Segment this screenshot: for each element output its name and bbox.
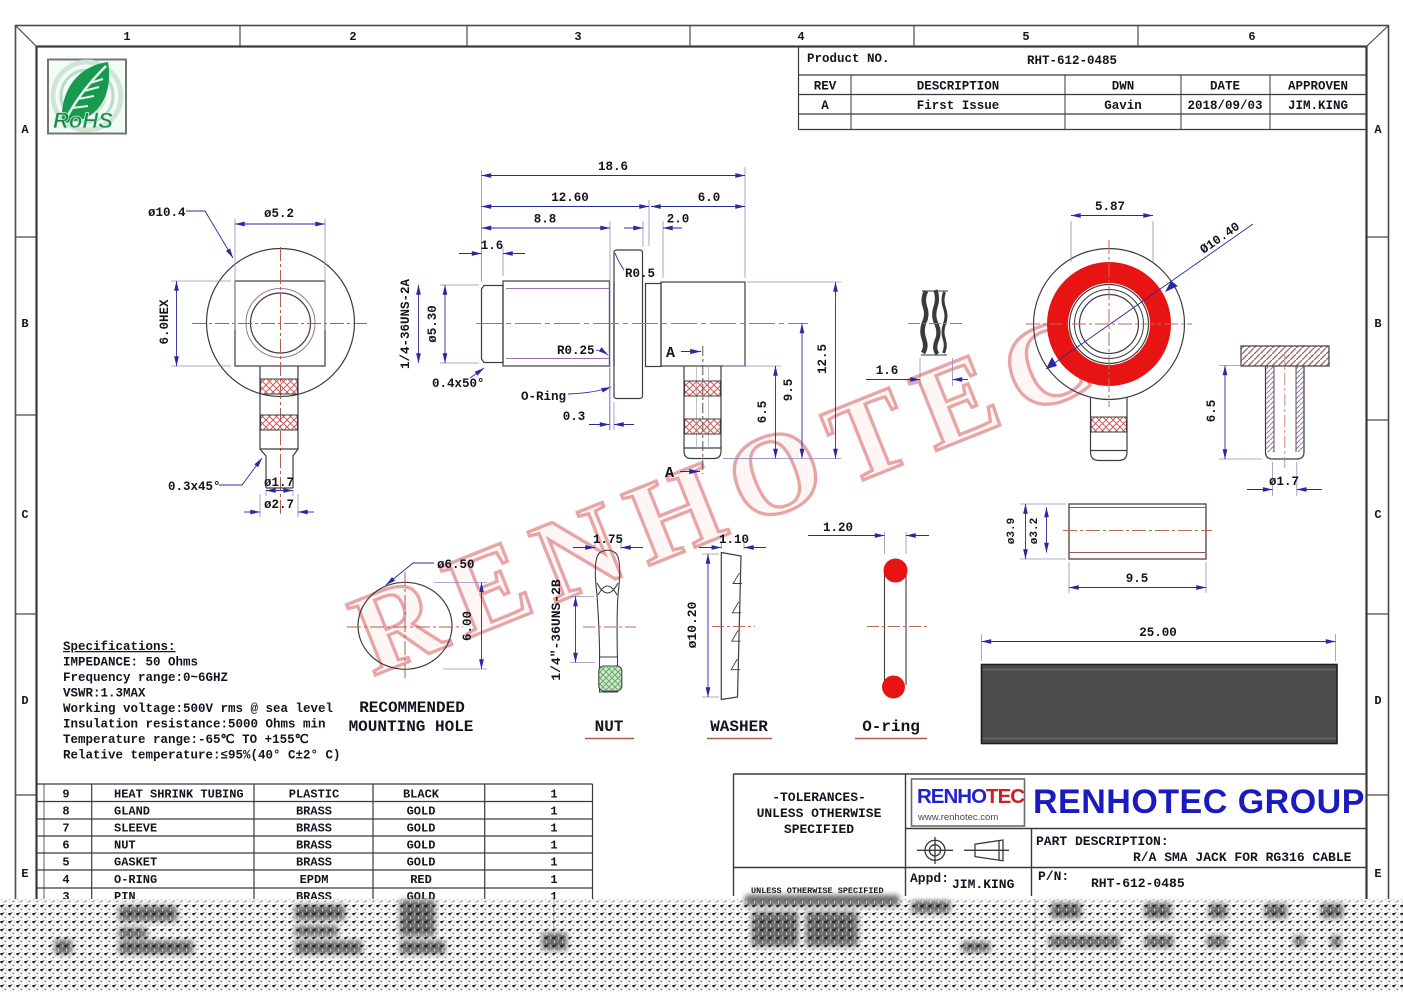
svg-text:WASHER: WASHER <box>710 718 768 736</box>
svg-text:JIM.KING: JIM.KING <box>1288 99 1348 113</box>
svg-text:RECOMMENDED: RECOMMENDED <box>359 699 465 717</box>
svg-text:O-RING: O-RING <box>114 873 157 887</box>
svg-text:Insulation resistance:5000 Ohm: Insulation resistance:5000 Ohms min <box>63 718 326 732</box>
svg-text:ø1.7: ø1.7 <box>264 476 294 490</box>
svg-text:3: 3 <box>574 30 581 44</box>
svg-text:D: D <box>21 694 28 708</box>
svg-text:RENHOTEC GROUP: RENHOTEC GROUP <box>1033 783 1365 821</box>
svg-text:GOLD: GOLD <box>407 805 436 819</box>
svg-text:E: E <box>1374 867 1381 881</box>
svg-text:BRASS: BRASS <box>296 805 332 819</box>
svg-text:MOUNTING HOLE: MOUNTING HOLE <box>349 718 474 736</box>
svg-text:E: E <box>21 867 28 881</box>
svg-text:9.5: 9.5 <box>1126 572 1149 586</box>
svg-text:A: A <box>21 123 29 137</box>
svg-text:NUT: NUT <box>114 839 136 853</box>
svg-text:ø5.2: ø5.2 <box>264 207 294 221</box>
svg-text:ø10.20: ø10.20 <box>685 601 700 648</box>
svg-text:6.0HEX: 6.0HEX <box>158 299 172 345</box>
svg-text:1.10: 1.10 <box>719 533 749 547</box>
svg-text:1: 1 <box>550 805 557 819</box>
svg-text:P/N:: P/N: <box>1038 869 1069 884</box>
svg-text:A: A <box>666 345 675 362</box>
svg-text:ø1.7: ø1.7 <box>1269 475 1299 489</box>
svg-text:APPROVEN: APPROVEN <box>1288 80 1348 94</box>
svg-text:0.3x45°: 0.3x45° <box>168 480 221 494</box>
svg-text:PART DESCRIPTION:: PART DESCRIPTION: <box>1036 834 1169 849</box>
svg-text:1.6: 1.6 <box>876 364 899 378</box>
svg-text:Frequency range:0~6GHZ: Frequency range:0~6GHZ <box>63 671 228 685</box>
svg-text:RED: RED <box>410 873 432 887</box>
svg-text:EPDM: EPDM <box>300 873 329 887</box>
svg-text:1: 1 <box>550 873 557 887</box>
svg-text:1: 1 <box>123 30 130 44</box>
svg-text:B: B <box>21 317 28 331</box>
svg-text:BLACK: BLACK <box>403 788 440 802</box>
svg-text:ø2.7: ø2.7 <box>264 498 294 512</box>
svg-text:0.3: 0.3 <box>563 410 586 424</box>
svg-text:R/A SMA JACK FOR RG316 CABLE: R/A SMA JACK FOR RG316 CABLE <box>1133 850 1352 865</box>
svg-text:ø10.4: ø10.4 <box>148 206 186 220</box>
svg-text:PLASTIC: PLASTIC <box>289 788 339 802</box>
svg-text:2.0: 2.0 <box>667 213 690 227</box>
svg-text:RENHOTEC: RENHOTEC <box>917 785 1025 808</box>
svg-text:D: D <box>1374 694 1381 708</box>
svg-text:25.00: 25.00 <box>1139 626 1177 640</box>
svg-text:REV: REV <box>814 80 837 94</box>
svg-text:8.8: 8.8 <box>534 213 557 227</box>
svg-text:Specifications:: Specifications: <box>63 640 176 654</box>
svg-text:ø5.30: ø5.30 <box>426 305 440 343</box>
svg-text:RoHS: RoHS <box>53 108 113 133</box>
svg-text:6.5: 6.5 <box>1205 400 1219 423</box>
svg-text:IMPEDANCE: 50 Ohms: IMPEDANCE: 50 Ohms <box>63 656 198 670</box>
svg-text:Temperature range:-65℃ TO +155: Temperature range:-65℃ TO +155℃ <box>63 733 309 747</box>
svg-text:BRASS: BRASS <box>296 856 332 870</box>
svg-text:5.87: 5.87 <box>1095 200 1125 214</box>
svg-text:GASKET: GASKET <box>114 856 157 870</box>
svg-text:JIM.KING: JIM.KING <box>952 877 1015 892</box>
svg-text:GOLD: GOLD <box>407 856 436 870</box>
svg-text:A: A <box>821 99 829 113</box>
svg-text:1: 1 <box>550 839 557 853</box>
svg-text:1: 1 <box>550 788 557 802</box>
svg-text:2: 2 <box>349 30 356 44</box>
svg-text:Working voltage:500V rms @ sea: Working voltage:500V rms @ sea level <box>63 702 333 716</box>
svg-text:-TOLERANCES-: -TOLERANCES- <box>772 790 866 805</box>
svg-text:1/4"-36UNS-2B: 1/4"-36UNS-2B <box>549 579 564 681</box>
svg-text:1.6: 1.6 <box>481 239 504 253</box>
svg-text:Appd:: Appd: <box>910 871 949 886</box>
svg-text:GLAND: GLAND <box>114 805 150 819</box>
svg-text:1: 1 <box>550 822 557 836</box>
svg-text:SPECIFIED: SPECIFIED <box>784 822 854 837</box>
svg-text:NUT: NUT <box>595 718 624 736</box>
svg-text:0.4x50°: 0.4x50° <box>432 377 485 391</box>
svg-text:UNLESS OTHERWISE SPECIFIED: UNLESS OTHERWISE SPECIFIED <box>751 886 884 896</box>
svg-text:R0.25: R0.25 <box>557 344 595 358</box>
svg-text:RHT-612-0485: RHT-612-0485 <box>1091 876 1185 891</box>
svg-text:12.60: 12.60 <box>551 191 589 205</box>
svg-text:GOLD: GOLD <box>407 839 436 853</box>
svg-text:1.20: 1.20 <box>823 521 853 535</box>
svg-text:6.5: 6.5 <box>756 401 770 424</box>
svg-text:12.5: 12.5 <box>816 344 830 374</box>
svg-text:R0.5: R0.5 <box>625 267 655 281</box>
svg-text:C: C <box>21 508 28 522</box>
svg-text:9: 9 <box>62 788 69 802</box>
svg-text:5: 5 <box>62 856 69 870</box>
svg-text:6.0: 6.0 <box>698 191 721 205</box>
svg-text:1: 1 <box>550 856 557 870</box>
svg-text:4: 4 <box>62 873 69 887</box>
svg-text:O-ring: O-ring <box>862 718 920 736</box>
svg-text:SLEEVE: SLEEVE <box>114 822 157 836</box>
svg-text:7: 7 <box>62 822 69 836</box>
svg-text:ø3.2: ø3.2 <box>1029 518 1041 544</box>
svg-text:C: C <box>1374 508 1381 522</box>
svg-text:2018/09/03: 2018/09/03 <box>1187 99 1262 113</box>
svg-text:4: 4 <box>797 30 804 44</box>
svg-text:ø6.50: ø6.50 <box>437 558 475 572</box>
svg-text:GOLD: GOLD <box>407 822 436 836</box>
svg-text:RHT-612-0485: RHT-612-0485 <box>1027 54 1117 68</box>
svg-text:6: 6 <box>1248 30 1255 44</box>
svg-text:O-Ring: O-Ring <box>521 390 566 404</box>
svg-text:B: B <box>1374 317 1381 331</box>
svg-text:BRASS: BRASS <box>296 822 332 836</box>
svg-text:9.5: 9.5 <box>782 379 796 402</box>
svg-text:6.00: 6.00 <box>461 611 475 641</box>
svg-text:First Issue: First Issue <box>917 99 1000 113</box>
svg-text:A: A <box>1374 123 1382 137</box>
svg-text:DESCRIPTION: DESCRIPTION <box>917 80 1000 94</box>
svg-text:1.75: 1.75 <box>593 533 623 547</box>
svg-text:1/4-36UNS-2A: 1/4-36UNS-2A <box>399 278 413 369</box>
svg-text:ø3.9: ø3.9 <box>1006 518 1018 544</box>
svg-text:DATE: DATE <box>1210 80 1240 94</box>
svg-text:5: 5 <box>1022 30 1029 44</box>
svg-text:A: A <box>665 465 674 482</box>
svg-text:Gavin: Gavin <box>1104 99 1142 113</box>
svg-text:UNLESS OTHERWISE: UNLESS OTHERWISE <box>757 806 882 821</box>
svg-text:8: 8 <box>62 805 69 819</box>
svg-text:Relative temperature:≤95%(40°: Relative temperature:≤95%(40° C±2° C) <box>63 749 341 763</box>
svg-text:DWN: DWN <box>1112 80 1135 94</box>
svg-text:6: 6 <box>62 839 69 853</box>
svg-text:18.6: 18.6 <box>598 160 628 174</box>
svg-text:HEAT SHRINK TUBING: HEAT SHRINK TUBING <box>114 788 244 802</box>
svg-text:BRASS: BRASS <box>296 839 332 853</box>
svg-text:Product NO.: Product NO. <box>807 52 890 66</box>
svg-text:www.renhotec.com: www.renhotec.com <box>917 812 998 823</box>
svg-text:VSWR:1.3MAX: VSWR:1.3MAX <box>63 687 146 701</box>
